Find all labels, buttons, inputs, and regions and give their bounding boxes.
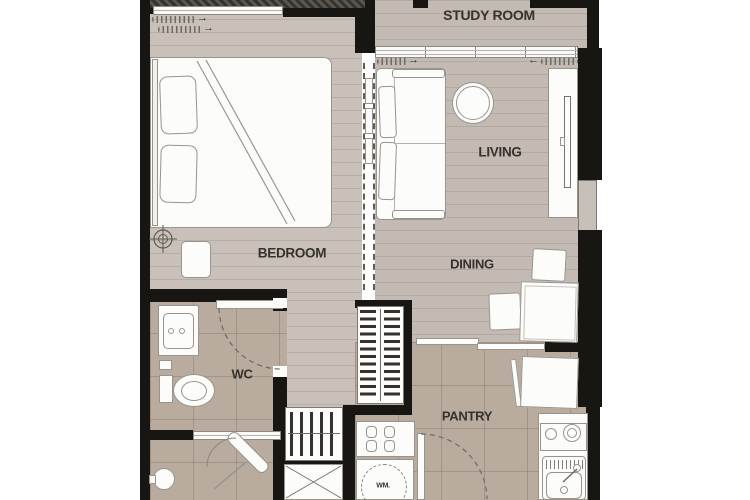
sofa-back-cushion (378, 142, 397, 201)
wall-right-column-upper (578, 48, 602, 180)
sliding-panel (365, 78, 373, 104)
wall-closet2-right (343, 415, 355, 500)
pantry-sliding-panel (477, 343, 545, 350)
window-study-sliding (375, 46, 578, 58)
dining-table-inner (523, 285, 576, 340)
sofa-back-cushion (378, 86, 397, 139)
vanity-faucet (179, 328, 185, 334)
refrigerator (520, 356, 579, 409)
burner (384, 440, 395, 452)
window-bedroom (153, 6, 283, 15)
slide-direction-arrow: → (203, 23, 214, 33)
bed-headboard (152, 59, 158, 226)
sofa-armrest (392, 69, 445, 78)
shower-head (153, 468, 175, 490)
slide-direction-arrow: ← (528, 55, 539, 65)
tv-mount (560, 137, 565, 146)
floor-plan: → → → ← WM. (0, 0, 750, 500)
wc-door-jamb (273, 298, 287, 308)
wall-shower-stub (150, 430, 193, 440)
room-label-wc: WC (231, 367, 252, 382)
wardrobe-hangers (360, 310, 376, 400)
burner-small (545, 428, 557, 440)
wall-study-top-right (530, 0, 598, 8)
sliding-panel (365, 108, 373, 134)
sliding-panel (365, 138, 373, 164)
toilet-bowl-inner (181, 381, 207, 401)
slide-direction-arrow: → (408, 55, 419, 65)
vanity-faucet (168, 328, 174, 334)
wall-dining-pantry-stub (545, 342, 592, 352)
pillow (159, 145, 198, 204)
wall-closet-right (404, 300, 412, 415)
wardrobe-rod (288, 433, 340, 434)
shower-arm (149, 475, 156, 484)
floor-dressing-corridor (287, 300, 357, 415)
toilet-tank (159, 375, 173, 403)
slide-coil (541, 58, 578, 65)
sink-drain (560, 486, 568, 494)
room-label-living: LIVING (478, 145, 521, 160)
service-shaft (284, 464, 343, 500)
wardrobe-hangers (290, 412, 338, 456)
wall-right-column-mid (578, 230, 602, 407)
bedside-stool (181, 241, 211, 278)
ac-ledge-niche (578, 180, 597, 232)
coffee-table-inner (456, 86, 490, 120)
pantry-sliding-panel (416, 338, 479, 345)
sofa-seat-split (395, 143, 445, 144)
wc-door-jamb (273, 366, 287, 377)
slide-coil (152, 16, 196, 23)
room-label-dining: DINING (450, 257, 494, 272)
wall-top-bedroom (283, 7, 365, 17)
dining-chair (531, 248, 567, 282)
washing-machine-label: WM. (376, 483, 389, 490)
room-label-study: STUDY ROOM (443, 7, 535, 23)
wall-left (140, 8, 150, 500)
wc-shelf (159, 360, 172, 370)
burner (366, 440, 377, 452)
burner (366, 426, 377, 438)
slide-coil (158, 26, 202, 33)
burner-large-inner (567, 428, 577, 438)
tv-screen (564, 96, 571, 188)
sink-faucet (573, 464, 581, 472)
entrance-door-leaf (417, 433, 425, 500)
sofa-armrest (392, 210, 445, 219)
wardrobe-rod (380, 309, 381, 401)
dining-chair (488, 292, 521, 330)
wall-closet-bottom (343, 405, 412, 415)
slide-coil (377, 58, 408, 65)
wall-right-lower (586, 407, 600, 500)
wall-study-stub (413, 0, 428, 8)
pillow (159, 75, 198, 134)
wardrobe-hangers (384, 310, 400, 400)
room-label-pantry: PANTRY (442, 409, 492, 424)
room-label-bedroom: BEDROOM (258, 246, 326, 261)
burner (384, 426, 395, 438)
